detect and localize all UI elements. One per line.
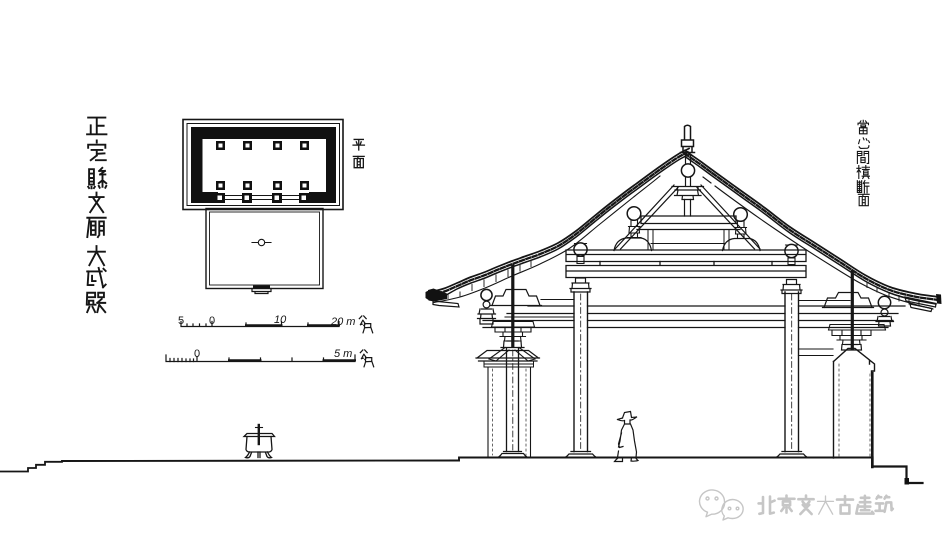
svg-text:5: 5 bbox=[178, 315, 184, 327]
svg-text:5 m: 5 m bbox=[334, 348, 352, 360]
svg-text:20 m: 20 m bbox=[330, 316, 355, 328]
svg-text:10: 10 bbox=[274, 314, 287, 326]
svg-text:0: 0 bbox=[194, 348, 200, 360]
svg-text:0: 0 bbox=[209, 315, 215, 327]
